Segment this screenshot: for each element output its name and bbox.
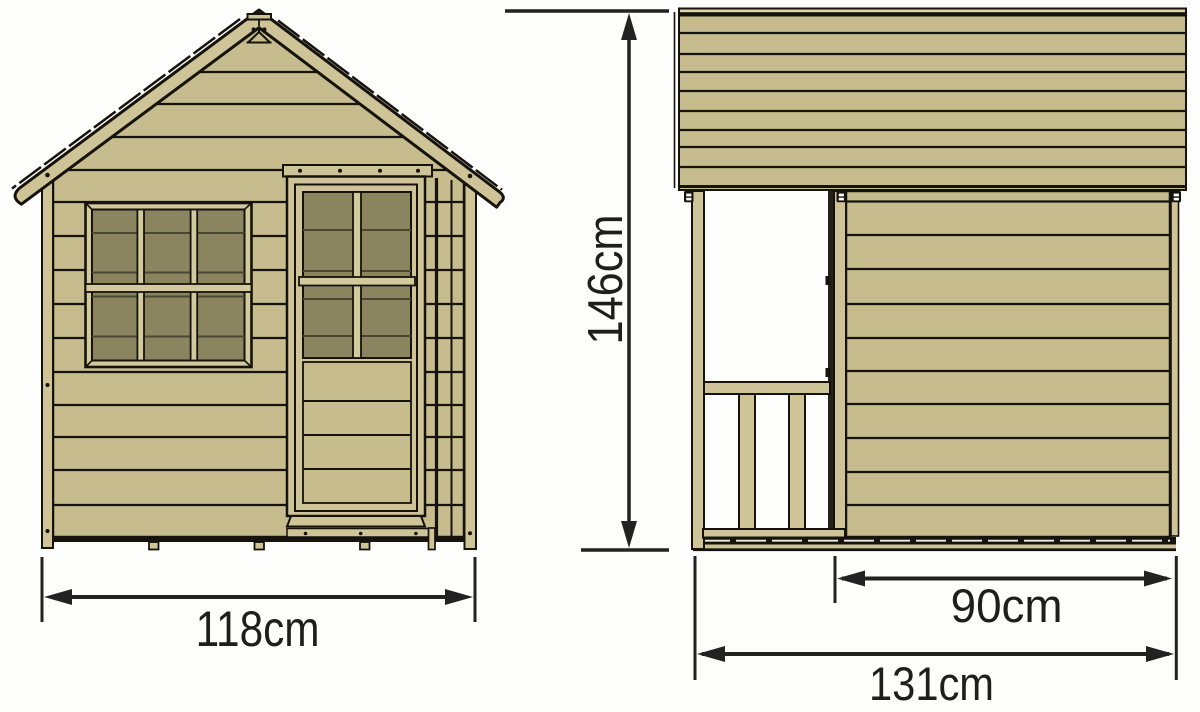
svg-text:146cm: 146cm (579, 215, 633, 345)
svg-text:118cm: 118cm (196, 601, 320, 657)
svg-text:131cm: 131cm (869, 657, 994, 710)
svg-text:90cm: 90cm (951, 579, 1063, 632)
